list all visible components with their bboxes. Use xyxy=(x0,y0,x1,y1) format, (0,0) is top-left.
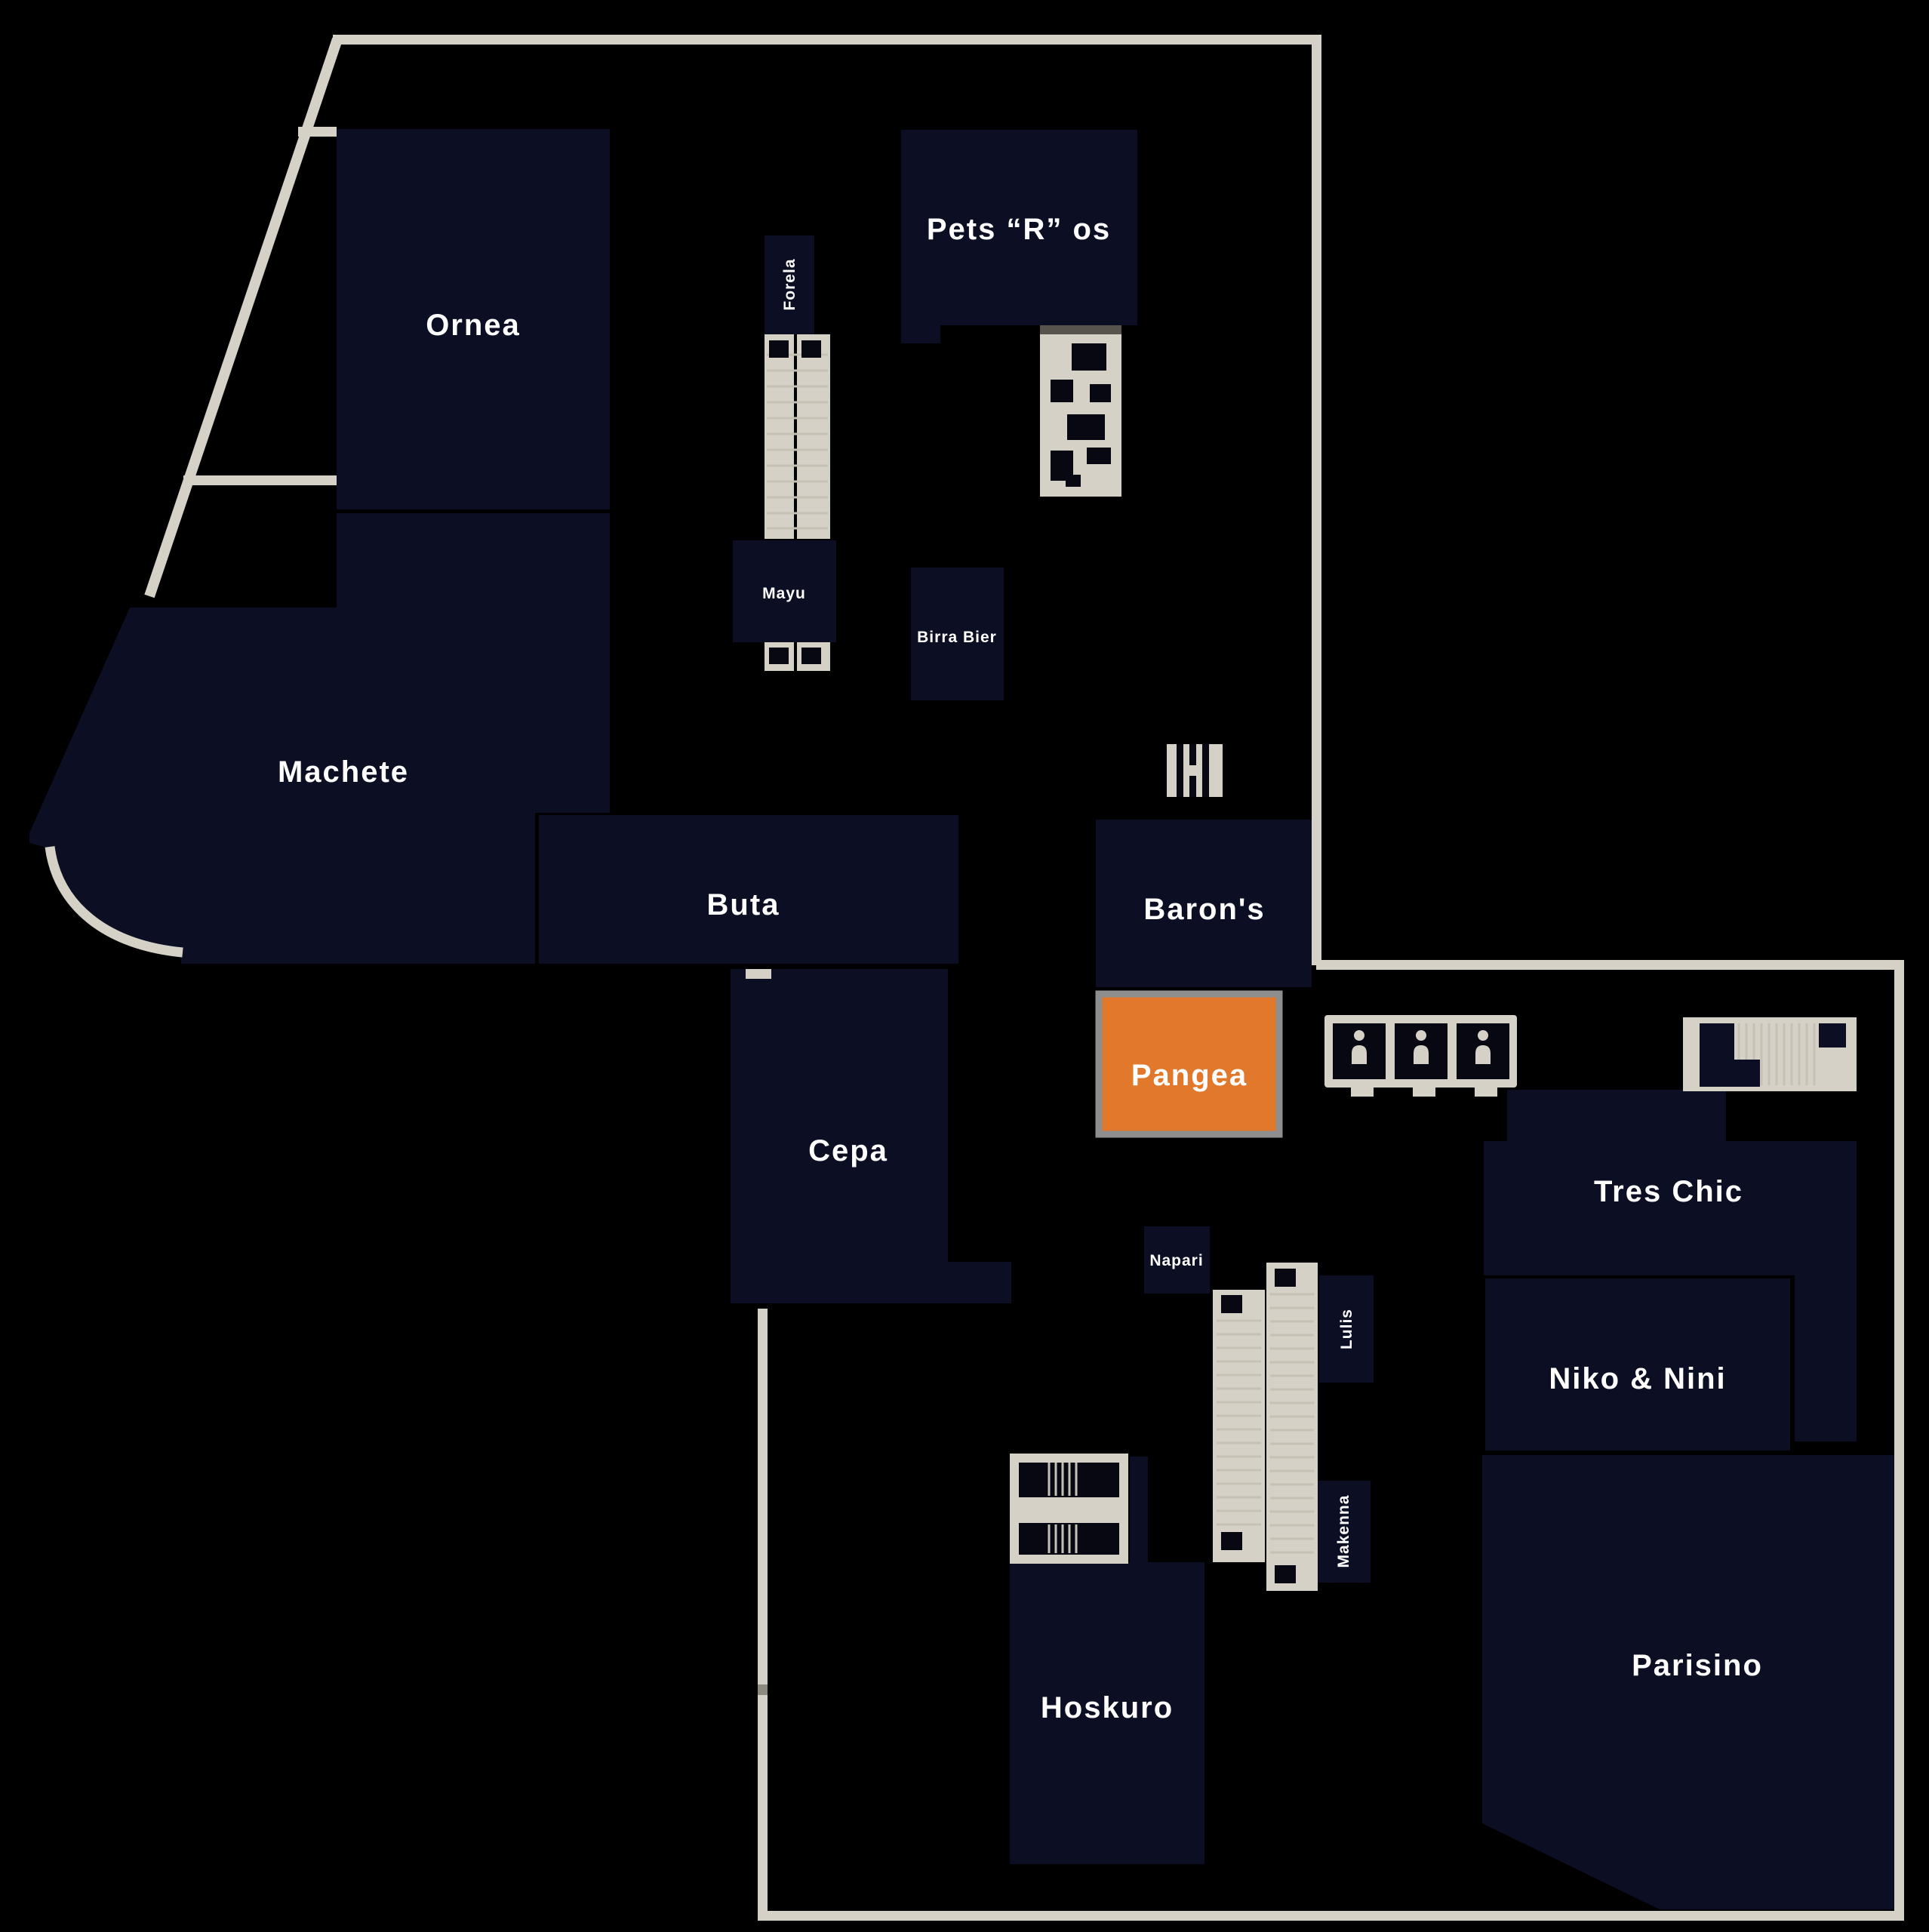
room-label-buta: Buta xyxy=(707,888,780,921)
stairs-mark xyxy=(1066,475,1081,487)
room-label-niko-nini: Niko & Nini xyxy=(1549,1362,1726,1395)
restrooms-tab xyxy=(1351,1088,1374,1097)
person-icon xyxy=(1416,1030,1426,1041)
room-label-pets-r-os: Pets “R” os xyxy=(927,213,1111,246)
wall-bottom xyxy=(758,1911,1904,1921)
room-label-parisino: Parisino xyxy=(1632,1649,1763,1682)
escalator-step-notch xyxy=(801,340,821,358)
person-icon xyxy=(1414,1045,1429,1064)
stairs-mark xyxy=(1072,343,1106,371)
room-label-makenna: Makenna xyxy=(1335,1495,1352,1568)
room-label-birra-bier: Birra Bier xyxy=(917,629,997,646)
room-parisino[interactable] xyxy=(1482,1455,1897,1909)
room-label-lulis: Lulis xyxy=(1338,1309,1355,1349)
escalator-step-notch xyxy=(769,648,789,664)
room-label-napari: Napari xyxy=(1149,1252,1203,1269)
escalator-step-notch xyxy=(801,648,821,664)
stairs-mark xyxy=(1067,414,1105,440)
stairs-icon xyxy=(1040,325,1121,497)
escalator-cutout xyxy=(1734,1060,1760,1087)
person-icon xyxy=(1354,1030,1364,1041)
stairs-mark xyxy=(1189,744,1196,765)
escalator-cutout xyxy=(1819,1023,1846,1048)
wall-left-lower xyxy=(758,1309,768,1921)
escalator-step-notch xyxy=(769,340,789,358)
person-icon xyxy=(1475,1045,1491,1064)
stairs-mark xyxy=(1177,744,1183,797)
wall-mid-horizontal xyxy=(1316,960,1903,970)
escalator-step-notch xyxy=(1275,1565,1296,1583)
stairs-shadow xyxy=(1040,325,1121,334)
room-label-forela: Forela xyxy=(781,258,798,310)
room-label-machete: Machete xyxy=(278,755,409,789)
restrooms-tab xyxy=(1475,1088,1497,1097)
room-label-barons: Baron's xyxy=(1143,893,1265,926)
restrooms-icon xyxy=(1324,1015,1517,1097)
wall-stub-middle xyxy=(183,475,337,485)
mall-floor-plan: Ornea Machete Buta Cepa Forela Mayu Pets… xyxy=(0,0,1929,1932)
room-label-tres-chic: Tres Chic xyxy=(1594,1175,1743,1208)
escalator-step-notch xyxy=(1221,1532,1242,1550)
wall-top xyxy=(333,35,1321,45)
stairs-landing xyxy=(1019,1497,1119,1523)
wall-stub-cepa xyxy=(746,969,771,979)
escalator-step-notch xyxy=(1275,1269,1296,1287)
room-label-pangea: Pangea xyxy=(1131,1059,1248,1092)
escalator-rail xyxy=(1266,1263,1318,1591)
stairs-icon xyxy=(1167,744,1223,797)
stairs-mark xyxy=(1051,380,1073,402)
escalator-rail xyxy=(1213,1290,1265,1562)
escalator-step-notch xyxy=(1221,1295,1242,1313)
floor-plan-stage: Ornea Machete Buta Cepa Forela Mayu Pets… xyxy=(0,0,1929,1932)
stairs-mark xyxy=(1087,448,1111,464)
stairs-mark xyxy=(1202,744,1209,797)
wall-right-lower xyxy=(1894,960,1904,1921)
wall-right-upper xyxy=(1312,35,1321,965)
escalator-icon xyxy=(1683,1017,1857,1091)
restrooms-tab xyxy=(1413,1088,1435,1097)
stairs-mark xyxy=(1090,384,1111,402)
stairs-mark xyxy=(1189,776,1196,797)
stairs-icon xyxy=(1010,1454,1128,1564)
room-label-cepa: Cepa xyxy=(808,1134,888,1168)
escalator-cutout xyxy=(1700,1023,1734,1087)
room-label-ornea: Ornea xyxy=(426,309,521,342)
person-icon xyxy=(1352,1045,1367,1064)
room-label-mayu: Mayu xyxy=(762,585,806,602)
escalator-rail xyxy=(797,334,830,539)
room-label-hoskuro: Hoskuro xyxy=(1041,1691,1174,1724)
door-marker xyxy=(758,1684,768,1695)
escalator-rail xyxy=(765,334,794,539)
person-icon xyxy=(1478,1030,1488,1041)
